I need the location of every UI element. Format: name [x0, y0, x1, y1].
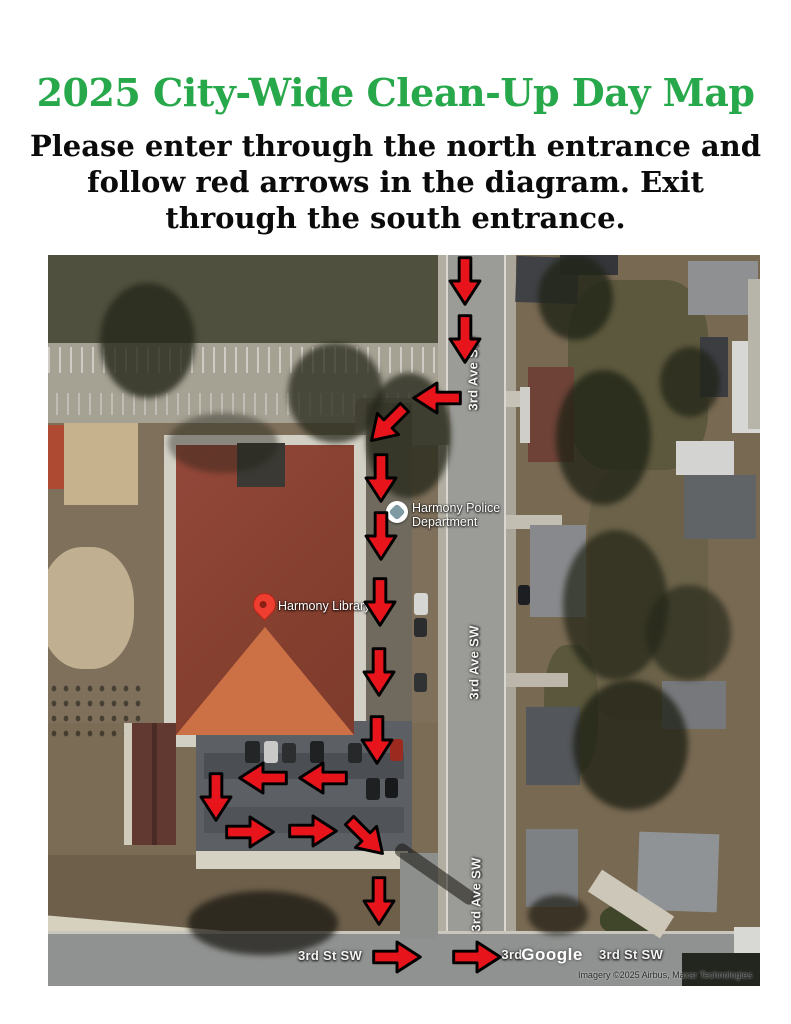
satellite-map: 3rd Ave SW 3rd Ave SW 3rd Ave SW 3rd St … — [48, 255, 760, 986]
car — [310, 741, 324, 763]
house-roof — [526, 707, 580, 785]
library-poi-label: Harmony Library — [278, 599, 370, 613]
street-label-3rd-st-left: 3rd St SW — [280, 948, 380, 963]
police-label-line-1: Harmony Police — [412, 501, 500, 515]
police-label-line-2: Department — [412, 515, 500, 529]
car — [245, 741, 260, 763]
tree — [538, 255, 613, 340]
tree — [100, 283, 195, 398]
street-label-3rd-st-right: 3rd St SW — [581, 947, 681, 962]
tree — [573, 680, 688, 810]
page-title: 2025 City-Wide Clean-Up Day Map — [0, 70, 791, 115]
driveway — [506, 673, 568, 687]
route-arrow — [362, 647, 396, 697]
house-side — [520, 387, 530, 443]
car — [414, 618, 427, 637]
route-arrow — [364, 511, 398, 561]
library-pin-dot — [258, 600, 268, 610]
route-arrow — [448, 256, 482, 306]
instructions-line-3: through the south entrance. — [0, 200, 791, 236]
route-arrow — [372, 940, 422, 974]
tree — [188, 891, 338, 955]
instructions-line-2: follow red arrows in the diagram. Exit — [0, 164, 791, 200]
house-roof — [676, 441, 734, 475]
route-arrow — [363, 577, 397, 627]
car — [414, 673, 427, 692]
street-label-3rd-ave-mid: 3rd Ave SW — [467, 613, 482, 713]
shelter-roof — [48, 425, 64, 489]
house-roof — [684, 475, 756, 539]
instructions-line-1: Please enter through the north entrance … — [0, 128, 791, 164]
sand-patch — [48, 547, 134, 669]
road-edge-strip — [748, 279, 760, 429]
car — [518, 585, 530, 605]
tree — [646, 585, 731, 680]
tree — [528, 895, 588, 935]
route-arrow — [364, 453, 398, 503]
imagery-attribution: Imagery ©2025 Airbus, Maxar Technologies — [468, 970, 752, 980]
car — [366, 778, 380, 800]
route-arrow — [360, 715, 394, 765]
route-arrow — [362, 876, 396, 926]
route-arrow — [452, 940, 502, 974]
car — [385, 778, 398, 798]
route-arrow — [448, 314, 482, 364]
google-watermark: Google — [512, 945, 592, 965]
instructions: Please enter through the north entrance … — [0, 128, 791, 236]
route-arrow — [238, 761, 288, 795]
building-sw-ridge — [152, 723, 157, 845]
car — [414, 593, 428, 615]
route-arrow — [298, 761, 348, 795]
car — [264, 741, 278, 763]
route-arrow — [412, 381, 462, 415]
tree — [556, 370, 651, 505]
sidewalk — [506, 255, 516, 939]
police-poi-label: Harmony Police Department — [412, 501, 500, 529]
tree — [660, 347, 720, 417]
route-arrow — [288, 814, 338, 848]
playground — [64, 423, 138, 505]
car — [282, 743, 296, 763]
tree — [168, 413, 278, 473]
route-arrow — [225, 815, 275, 849]
street-label-3rd-ave-bottom: 3rd Ave SW — [469, 845, 484, 945]
